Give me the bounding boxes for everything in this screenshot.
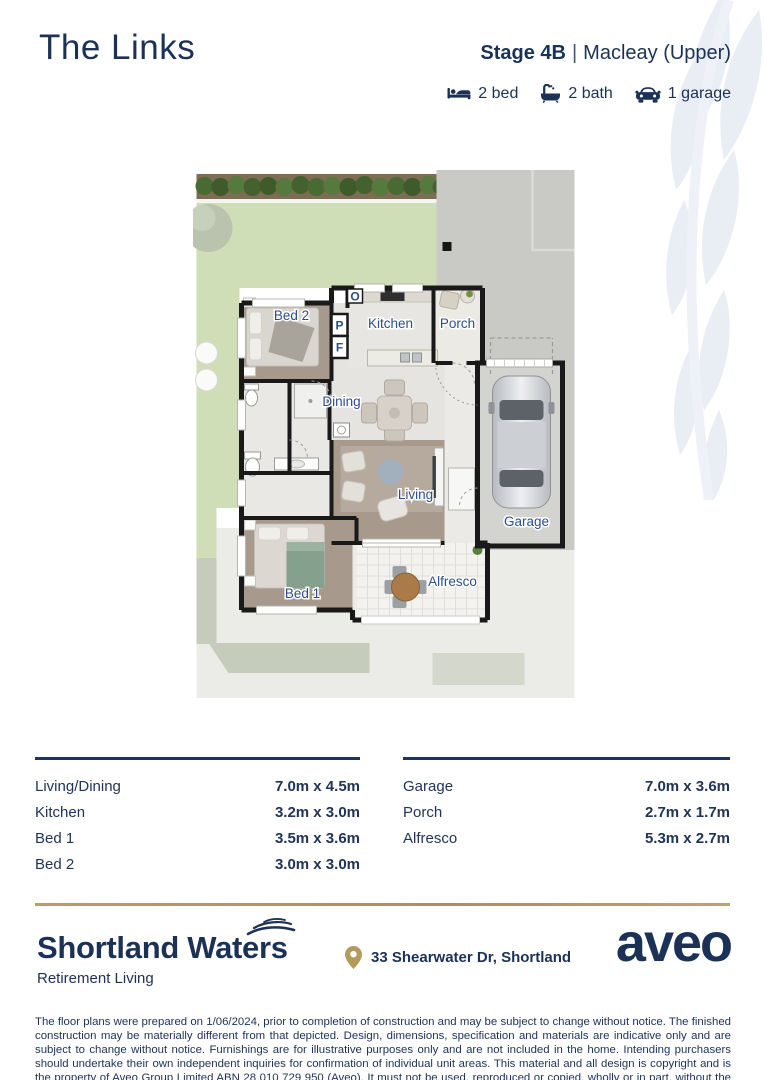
floor-plan: O P F Bed 2 Kitchen Porch Dining Living … [193,168,581,724]
location-pin-icon [345,946,362,969]
pantry-marker: P [335,319,343,333]
label-kitchen: Kitchen [368,316,413,331]
oven-marker: O [350,290,359,304]
feature-bed-label: 2 bed [478,85,518,103]
address-block: 33 Shearwater Dr, Shortland [345,946,571,969]
room-name: Kitchen [35,804,85,821]
table-row: Kitchen 3.2m x 3.0m [35,804,360,830]
table-row: Bed 1 3.5m x 3.6m [35,830,360,856]
room-name: Garage [403,778,453,795]
room-name: Porch [403,804,442,821]
label-alfresco: Alfresco [428,574,477,589]
room-name: Alfresco [403,830,457,847]
room-size: 7.0m x 4.5m [275,778,360,795]
label-porch: Porch [440,316,475,331]
footer-rule [35,903,730,906]
room-size: 2.7m x 1.7m [645,804,730,821]
car-topview [489,376,555,508]
room-size: 3.5m x 3.6m [275,830,360,847]
feature-bath: 2 bath [540,84,612,103]
label-bed2: Bed 2 [274,308,309,323]
disclaimer-text: The floor plans were prepared on 1/06/20… [35,1016,731,1080]
bed-icon [447,85,471,102]
brand-lockup: Shortland Waters Retirement Living [37,932,288,987]
aveo-logo: aveo [616,916,731,970]
room-name: Living/Dining [35,778,121,795]
room-name: Bed 2 [35,856,74,873]
car-icon [635,85,661,103]
table-row: Bed 2 3.0m x 3.0m [35,856,360,882]
feature-summary: 2 bed 2 bath 1 [447,84,731,103]
table-rule-right [403,757,730,760]
table-row: Garage 7.0m x 3.6m [403,778,730,804]
table-row: Porch 2.7m x 1.7m [403,804,730,830]
dimensions-table-right: Garage 7.0m x 3.6m Porch 2.7m x 1.7m Alf… [403,778,730,856]
stage-separator: | [566,42,583,64]
room-name: Bed 1 [35,830,74,847]
leaf-watermark [574,0,764,500]
label-dining: Dining [322,394,360,409]
feature-garage: 1 garage [635,85,731,103]
stage-label: Stage 4B [480,42,566,64]
floorplan-page: The Links Stage 4B|Macleay (Upper) 2 bed… [0,0,764,1080]
room-size: 3.2m x 3.0m [275,804,360,821]
fridge-marker: F [336,341,343,355]
wave-swoosh-icon [244,918,296,938]
table-rule-left [35,757,360,760]
variant-label: Macleay (Upper) [583,42,731,64]
table-row: Living/Dining 7.0m x 4.5m [35,778,360,804]
label-bed1: Bed 1 [285,586,320,601]
feature-bath-label: 2 bath [568,85,612,103]
address-text: 33 Shearwater Dr, Shortland [371,949,571,966]
room-size: 7.0m x 3.6m [645,778,730,795]
table-row: Alfresco 5.3m x 2.7m [403,830,730,856]
room-size: 5.3m x 2.7m [645,830,730,847]
feature-garage-label: 1 garage [668,85,731,103]
bath-icon [540,84,561,103]
label-living: Living [398,487,433,502]
stage-line: Stage 4B|Macleay (Upper) [480,42,731,65]
brand-tagline: Retirement Living [37,970,288,987]
room-size: 3.0m x 3.0m [275,856,360,873]
page-title: The Links [39,28,195,68]
label-garage: Garage [504,514,549,529]
feature-bed: 2 bed [447,85,518,103]
dimensions-table-left: Living/Dining 7.0m x 4.5m Kitchen 3.2m x… [35,778,360,882]
